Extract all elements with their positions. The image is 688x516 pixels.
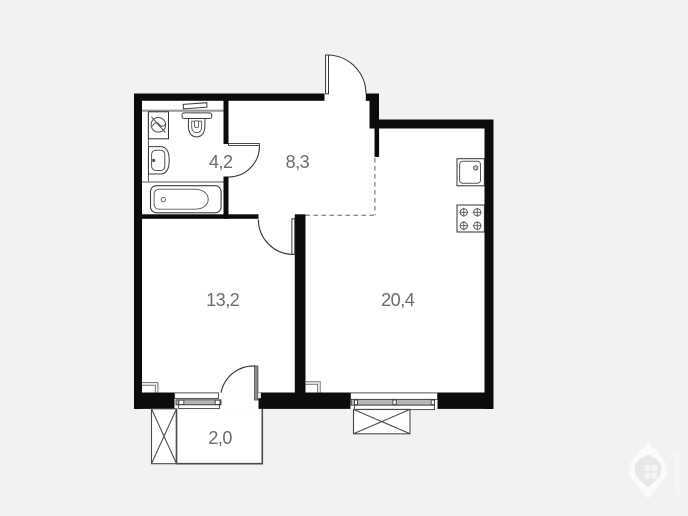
svg-text:8,3: 8,3	[286, 152, 310, 172]
svg-text:4,2: 4,2	[209, 152, 233, 172]
svg-text:13,2: 13,2	[206, 290, 240, 310]
svg-text:20,4: 20,4	[381, 290, 415, 310]
svg-text:2,0: 2,0	[208, 428, 232, 448]
